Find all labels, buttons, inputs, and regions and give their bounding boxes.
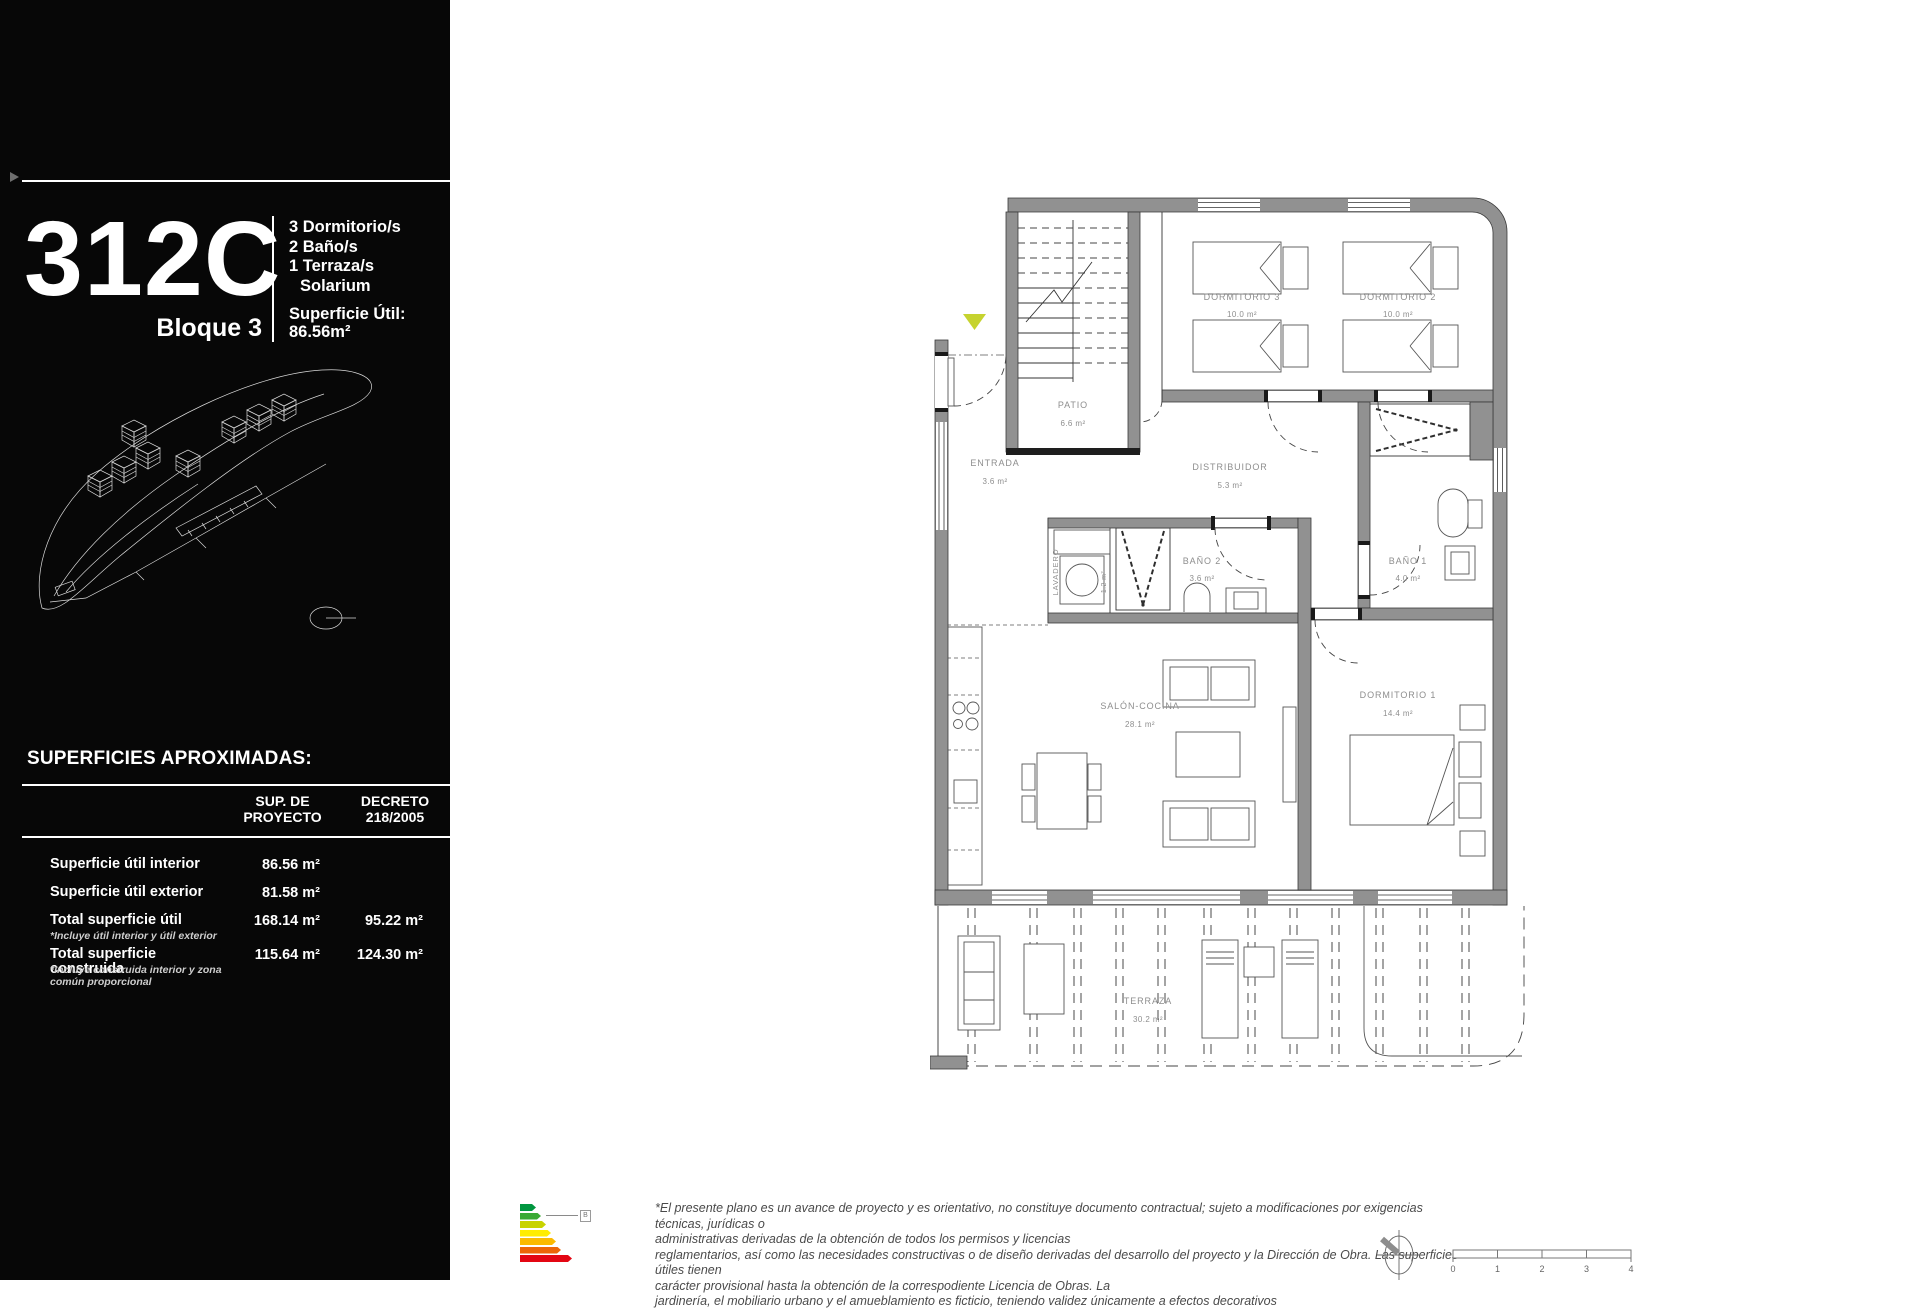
column-header-decreto: DECRETO 218/2005 bbox=[345, 793, 445, 825]
superficie-util-label: Superficie Útil: bbox=[289, 305, 405, 323]
room-area-lavadero: 1.2 m² bbox=[1101, 571, 1108, 594]
superficie-util: Superficie Útil: 86.56m² bbox=[289, 305, 405, 341]
row-decreto-value: 124.30 m² bbox=[328, 947, 423, 963]
row-proyecto-value: 168.14 m² bbox=[205, 913, 320, 929]
row-label: Superficie útil interior bbox=[50, 857, 215, 872]
energy-bar-d bbox=[520, 1230, 551, 1237]
row-note: *Incluye construida interior y zona comú… bbox=[50, 964, 225, 988]
disclaimer-line: administrativas derivadas de la obtenció… bbox=[655, 1232, 1465, 1248]
energy-rating-line bbox=[546, 1215, 578, 1216]
row-decreto-value: 95.22 m² bbox=[328, 913, 423, 929]
table-rule-header bbox=[22, 836, 450, 838]
room-area-dormitorio3: 10.0 m² bbox=[1227, 310, 1257, 319]
room-area-salon: 28.1 m² bbox=[1125, 720, 1155, 729]
unit-code: 312C bbox=[24, 206, 281, 312]
scale-bar: 0 1 2 3 4 bbox=[1448, 1244, 1643, 1278]
room-area-distribuidor: 5.3 m² bbox=[1217, 481, 1242, 490]
room-label-terraza: TERRAZA bbox=[1124, 996, 1172, 1006]
feature-bedrooms: 3 Dormitorio/s bbox=[289, 218, 401, 238]
scale-tick-3: 3 bbox=[1584, 1264, 1589, 1274]
floor-plan: ENTRADA 3.6 m² PATIO 6.6 m² DISTRIBUIDOR… bbox=[930, 150, 1550, 1110]
table-rule-top bbox=[22, 784, 450, 786]
room-area-bano1: 4.0 m² bbox=[1395, 574, 1420, 583]
bathroom2-laundry bbox=[1048, 518, 1266, 623]
room-label-distribuidor: DISTRIBUIDOR bbox=[1192, 462, 1267, 472]
room-area-terraza: 30.2 m² bbox=[1133, 1015, 1163, 1024]
feature-terraces: 1 Terraza/s bbox=[289, 257, 401, 277]
energy-bar-g bbox=[520, 1255, 572, 1262]
scale-tick-0: 0 bbox=[1450, 1264, 1455, 1274]
orientation-mark bbox=[310, 607, 356, 629]
energy-bar-e bbox=[520, 1238, 556, 1245]
scale-tick-1: 1 bbox=[1495, 1264, 1500, 1274]
row-note: *Incluye útil interior y útil exterior bbox=[50, 930, 225, 942]
room-area-entrada: 3.6 m² bbox=[982, 477, 1007, 486]
sidebar: 312C 3 Dormitorio/s 2 Baño/s 1 Terraza/s… bbox=[0, 0, 450, 1280]
disclaimer-line: jardinería, el mobiliario urbano y el am… bbox=[655, 1294, 1465, 1310]
surfaces-title: SUPERFICIES APROXIMADAS: bbox=[27, 748, 312, 770]
row-proyecto-value: 86.56 m² bbox=[205, 857, 320, 873]
top-rule bbox=[22, 180, 450, 182]
rule-arrow-icon bbox=[10, 172, 19, 182]
room-label-salon: SALÓN-COCINA bbox=[1100, 701, 1179, 711]
energy-rating-value: B bbox=[580, 1210, 591, 1222]
block-name: Bloque 3 bbox=[120, 314, 262, 343]
superficie-util-value: 86.56m² bbox=[289, 323, 405, 341]
room-label-lavadero: LAVADERO bbox=[1051, 549, 1060, 596]
stairs bbox=[1018, 220, 1128, 382]
feature-list: 3 Dormitorio/s 2 Baño/s 1 Terraza/s Sola… bbox=[289, 218, 401, 296]
room-label-dormitorio2: DORMITORIO 2 bbox=[1360, 292, 1437, 302]
room-area-bano2: 3.6 m² bbox=[1189, 574, 1214, 583]
disclaimer-line: *El presente plano es un avance de proye… bbox=[655, 1201, 1465, 1232]
row-proyecto-value: 115.64 m² bbox=[205, 947, 320, 963]
room-area-dormitorio2: 10.0 m² bbox=[1383, 310, 1413, 319]
north-compass-icon bbox=[1368, 1226, 1432, 1284]
room-label-entrada: ENTRADA bbox=[970, 458, 1019, 468]
row-label: Superficie útil exterior bbox=[50, 885, 215, 900]
energy-bar-b bbox=[520, 1213, 541, 1220]
bedroom3-furniture bbox=[1193, 242, 1308, 372]
row-proyecto-value: 81.58 m² bbox=[205, 885, 320, 901]
room-label-dormitorio1: DORMITORIO 1 bbox=[1360, 690, 1437, 700]
energy-bar-f bbox=[520, 1247, 561, 1254]
room-area-patio: 6.6 m² bbox=[1060, 419, 1085, 428]
title-divider bbox=[272, 216, 274, 342]
scale-tick-4: 4 bbox=[1628, 1264, 1633, 1274]
room-label-bano1: BAÑO 1 bbox=[1389, 556, 1427, 566]
energy-bar-c bbox=[520, 1221, 546, 1228]
column-header-proyecto: SUP. DE PROYECTO bbox=[225, 793, 340, 825]
disclaimer-text: *El presente plano es un avance de proye… bbox=[655, 1201, 1465, 1310]
room-label-patio: PATIO bbox=[1058, 400, 1088, 410]
room-label-dormitorio3: DORMITORIO 3 bbox=[1204, 292, 1281, 302]
entrance-marker bbox=[963, 314, 986, 330]
energy-bar-a bbox=[520, 1204, 536, 1211]
feature-bathrooms: 2 Baño/s bbox=[289, 238, 401, 258]
bedroom1-furniture bbox=[1350, 705, 1485, 856]
scale-tick-2: 2 bbox=[1539, 1264, 1544, 1274]
feature-solarium: Solarium bbox=[289, 277, 401, 297]
room-area-dormitorio1: 14.4 m² bbox=[1383, 709, 1413, 718]
row-label: Total superficie útil bbox=[50, 913, 215, 928]
bedroom2-furniture bbox=[1343, 242, 1458, 372]
living-room-furniture bbox=[947, 625, 1296, 885]
disclaimer-line: carácter provisional hasta la obtención … bbox=[655, 1279, 1465, 1295]
site-plan-illustration bbox=[26, 358, 386, 643]
disclaimer-line: reglamentarios, así como las necesidades… bbox=[655, 1248, 1465, 1279]
room-label-bano2: BAÑO 2 bbox=[1183, 556, 1221, 566]
energy-efficiency-icon: B bbox=[520, 1204, 600, 1268]
